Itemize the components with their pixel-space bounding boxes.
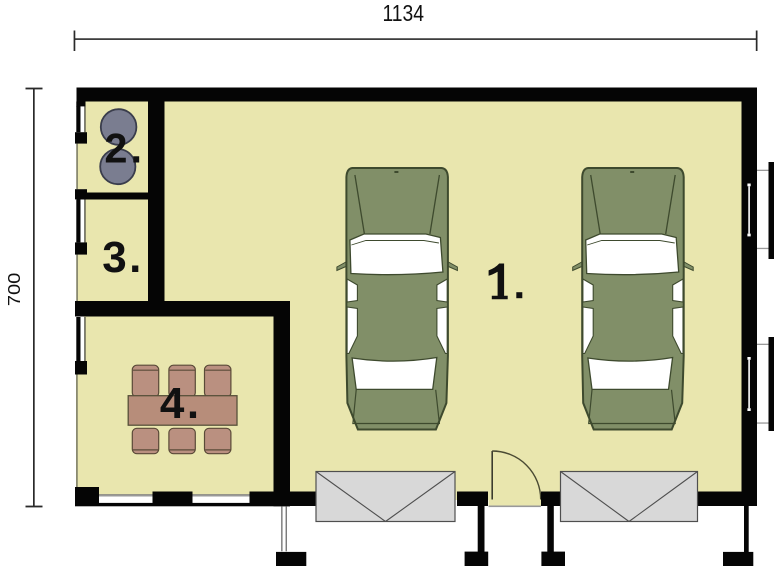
svg-text:1134: 1134 [382, 0, 424, 26]
svg-text:700: 700 [4, 272, 24, 306]
svg-text:2.: 2. [104, 125, 145, 172]
svg-text:3.: 3. [102, 233, 144, 282]
svg-text:4.: 4. [160, 379, 202, 428]
